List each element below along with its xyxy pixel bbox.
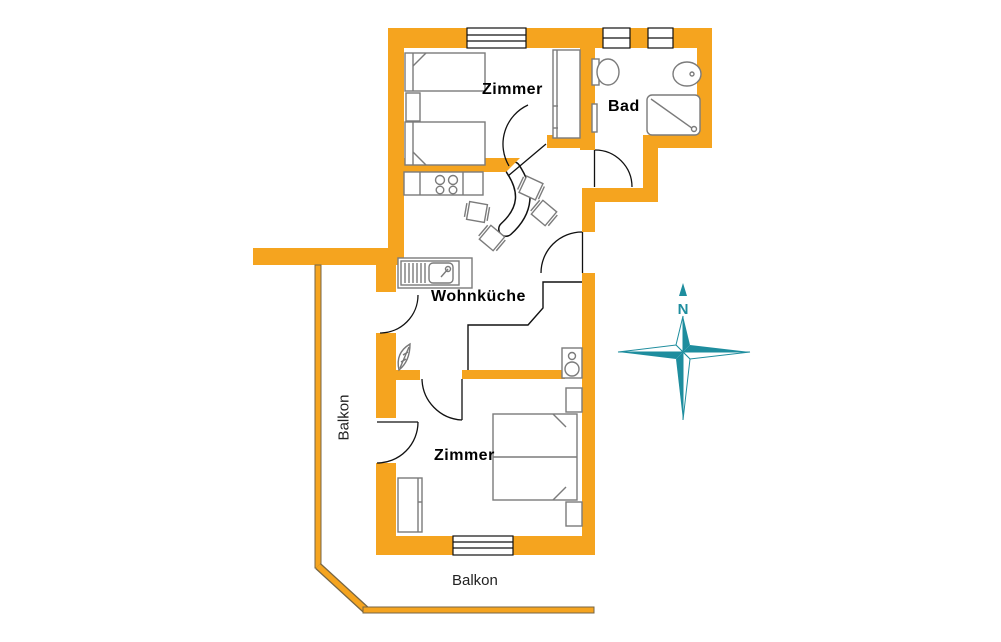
railing-bottom xyxy=(363,607,594,613)
wardrobe-top xyxy=(553,50,580,138)
wall-left-lower-a xyxy=(376,258,396,292)
label-balkon-bottom: Balkon xyxy=(452,572,498,589)
wall-under-shower xyxy=(643,135,712,148)
label-zimmer-top: Zimmer xyxy=(482,81,543,99)
kitchen-counter-stove xyxy=(404,172,483,195)
dining-table xyxy=(506,169,523,229)
wall-left-lower-c xyxy=(376,463,396,537)
bed-single-2 xyxy=(405,122,485,165)
chair-3 xyxy=(464,201,490,223)
wardrobe-bottom xyxy=(398,478,422,532)
radiator xyxy=(592,104,597,132)
door-kitchen-balcony xyxy=(380,295,418,333)
washbasin xyxy=(673,62,701,86)
wall-left-upper xyxy=(388,28,404,258)
bed-single-1 xyxy=(405,53,485,91)
label-balkon-left: Balkon xyxy=(336,383,353,453)
nightstand-right-1 xyxy=(566,388,582,412)
window-bottom-zimmer xyxy=(453,536,513,555)
door-entry xyxy=(541,232,583,273)
floor-plan: N Zimmer Bad Wohnküche Zimmer Balkon Bal… xyxy=(0,0,1001,642)
wall-bad-bottom xyxy=(582,188,658,202)
door-bad xyxy=(595,150,633,187)
plant xyxy=(398,344,410,370)
label-wohnkueche: Wohnküche xyxy=(431,288,526,306)
nightstand-right-2 xyxy=(566,502,582,526)
nightstand-top xyxy=(406,93,420,121)
wall-right-a xyxy=(582,202,595,232)
door-kitchen-zimmer xyxy=(422,379,462,420)
compass-rose: N xyxy=(618,283,750,420)
toilet xyxy=(592,59,619,85)
wall-interior xyxy=(462,370,565,379)
wall-interior-stub xyxy=(393,370,420,380)
shower xyxy=(647,95,700,135)
window-bad-1 xyxy=(603,28,630,48)
door-zimmer-balcony xyxy=(377,422,418,463)
compass-north-letter: N xyxy=(678,301,689,318)
bed-double xyxy=(493,414,577,500)
compass-arrowhead xyxy=(679,283,687,296)
label-bad: Bad xyxy=(608,98,640,116)
label-zimmer-bottom: Zimmer xyxy=(434,447,495,465)
window-bad-2 xyxy=(648,28,673,48)
window-top-zimmer xyxy=(467,28,526,48)
chair-2 xyxy=(529,199,558,228)
kitchen-sink-counter xyxy=(398,258,472,288)
wall-right-b xyxy=(582,273,595,555)
boiler xyxy=(562,348,582,378)
railing-diagonal xyxy=(318,566,366,610)
railing-left xyxy=(315,265,321,568)
